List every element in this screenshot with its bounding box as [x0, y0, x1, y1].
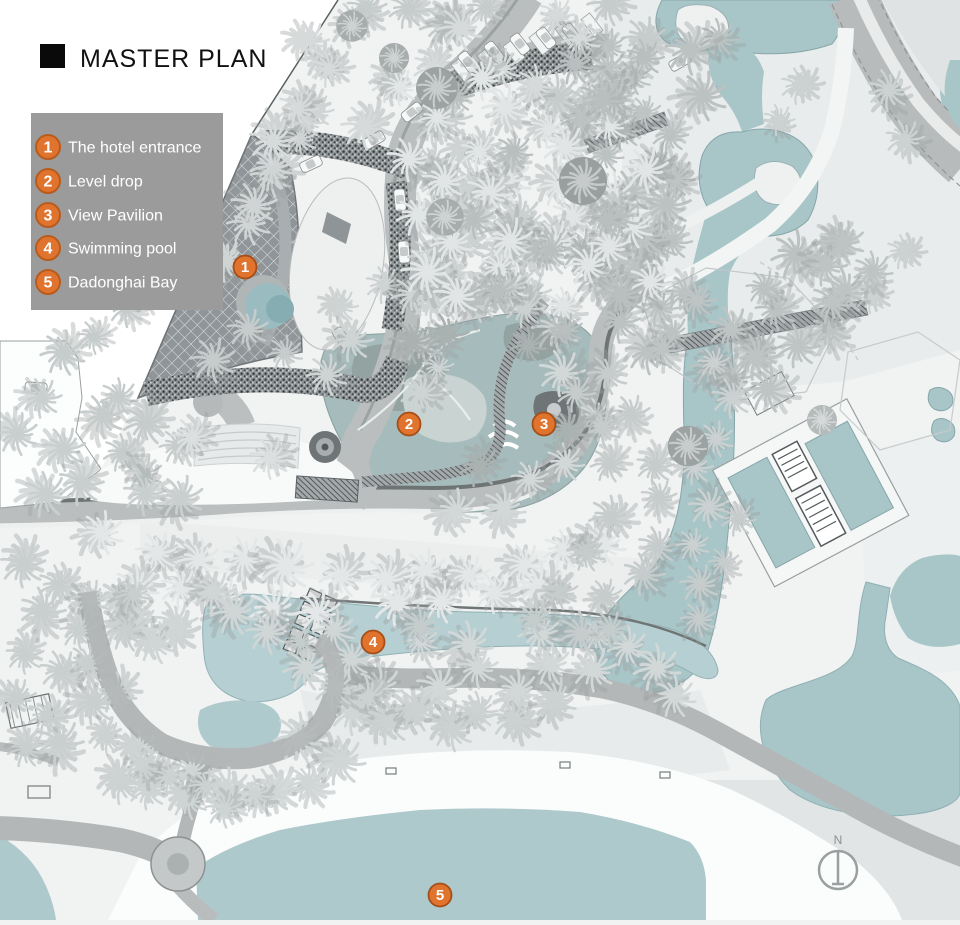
svg-text:3: 3	[44, 208, 53, 225]
svg-text:4: 4	[369, 634, 378, 651]
svg-text:4: 4	[44, 241, 53, 258]
svg-text:View Pavilion: View Pavilion	[68, 208, 163, 225]
svg-text:2: 2	[405, 416, 413, 433]
svg-text:5: 5	[44, 275, 53, 292]
svg-text:Dadonghai Bay: Dadonghai Bay	[68, 275, 177, 292]
svg-text:MASTER PLAN: MASTER PLAN	[80, 45, 267, 73]
svg-text:3: 3	[540, 416, 548, 433]
svg-text:2: 2	[44, 174, 53, 191]
svg-text:The hotel entrance: The hotel entrance	[68, 140, 202, 157]
svg-text:Level drop: Level drop	[68, 174, 143, 191]
svg-text:Swimming pool: Swimming pool	[68, 241, 176, 258]
svg-text:N: N	[834, 833, 843, 847]
svg-text:1: 1	[44, 140, 53, 157]
svg-text:5: 5	[436, 887, 444, 904]
svg-text:1: 1	[241, 259, 249, 276]
